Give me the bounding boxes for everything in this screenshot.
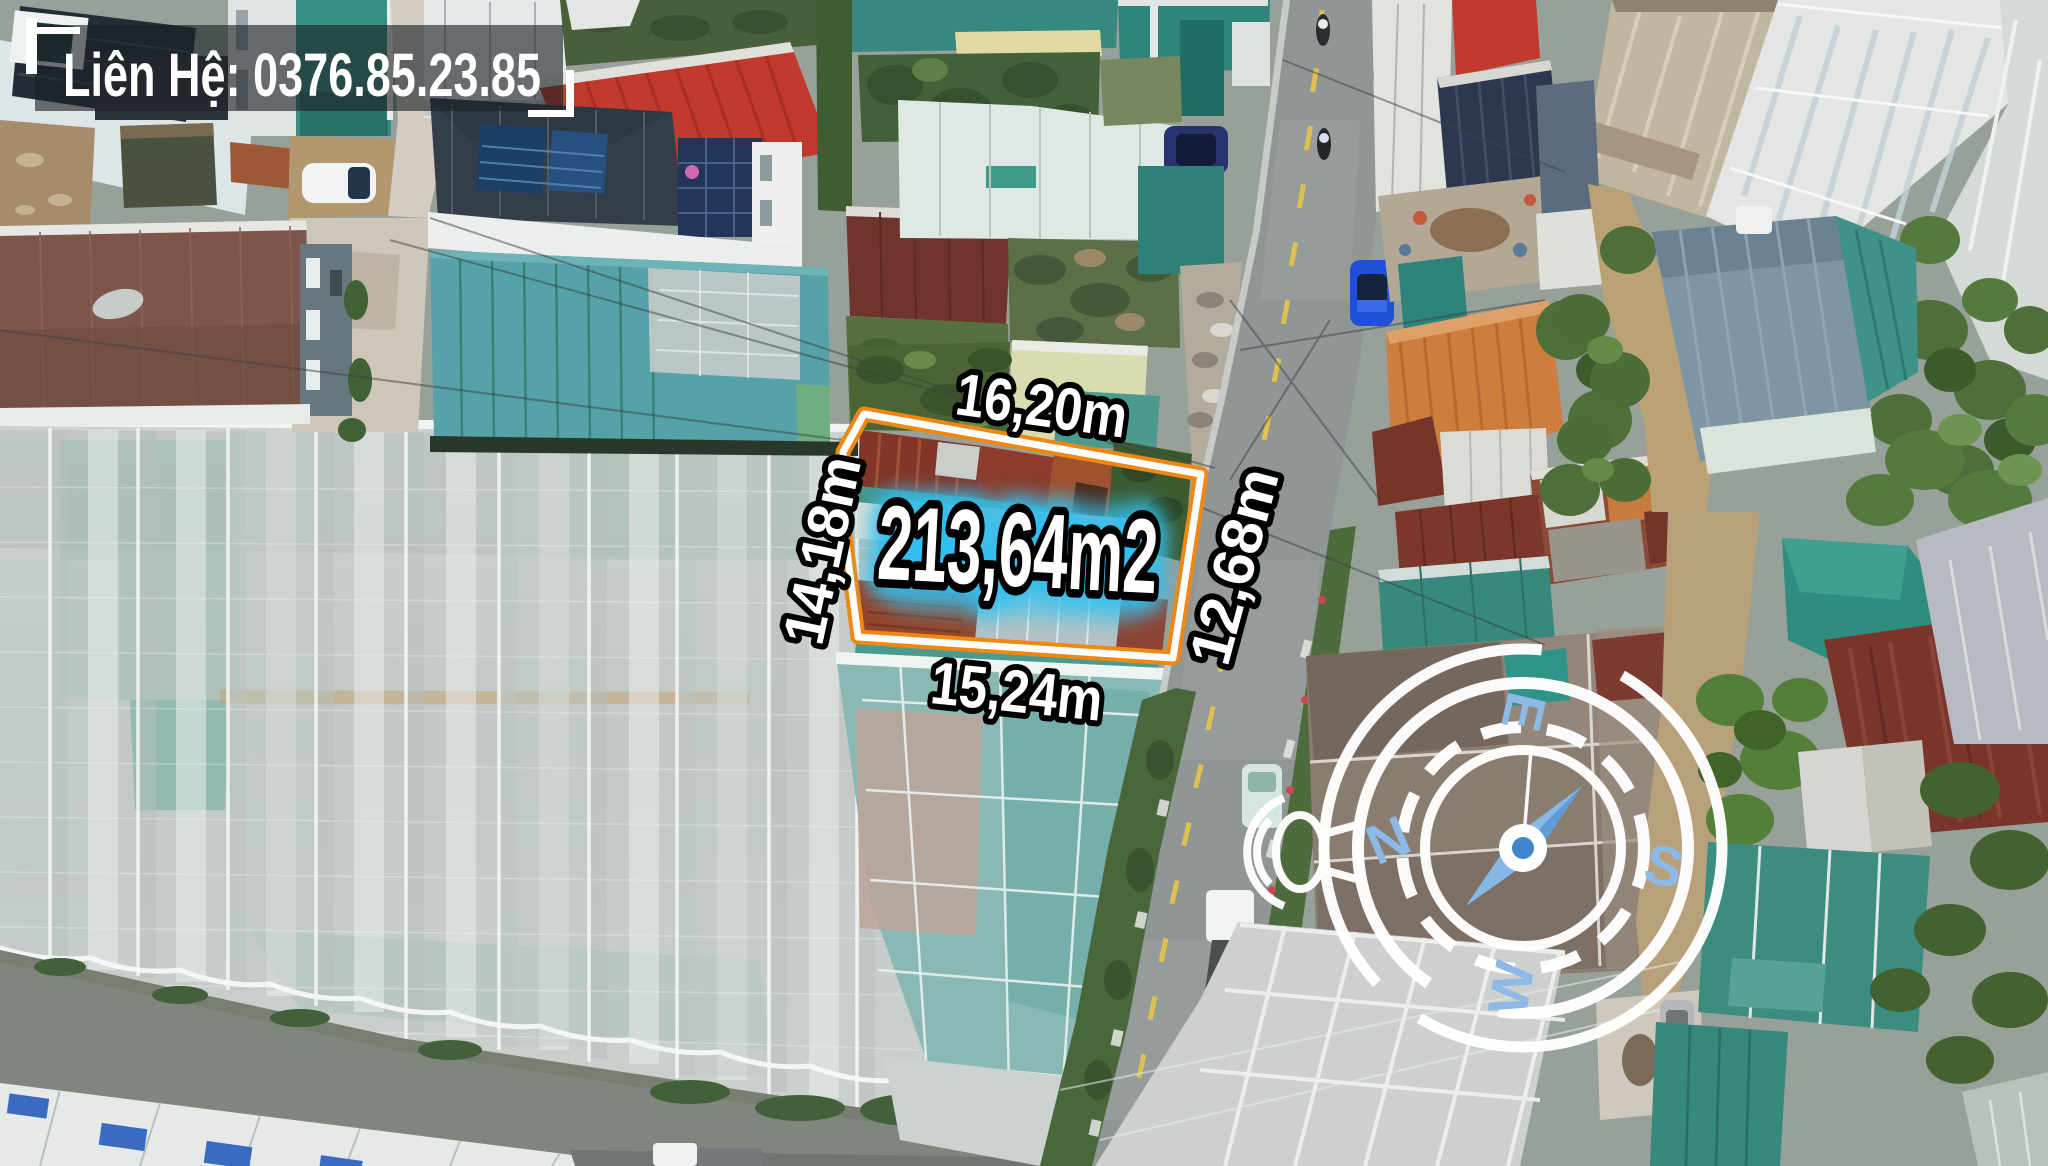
svg-text:Liên Hệ: 0376.85.23.85: Liên Hệ: 0376.85.23.85 xyxy=(63,41,541,109)
svg-text:W: W xyxy=(1475,956,1546,1019)
svg-text:213,64m2: 213,64m2 xyxy=(875,484,1161,616)
